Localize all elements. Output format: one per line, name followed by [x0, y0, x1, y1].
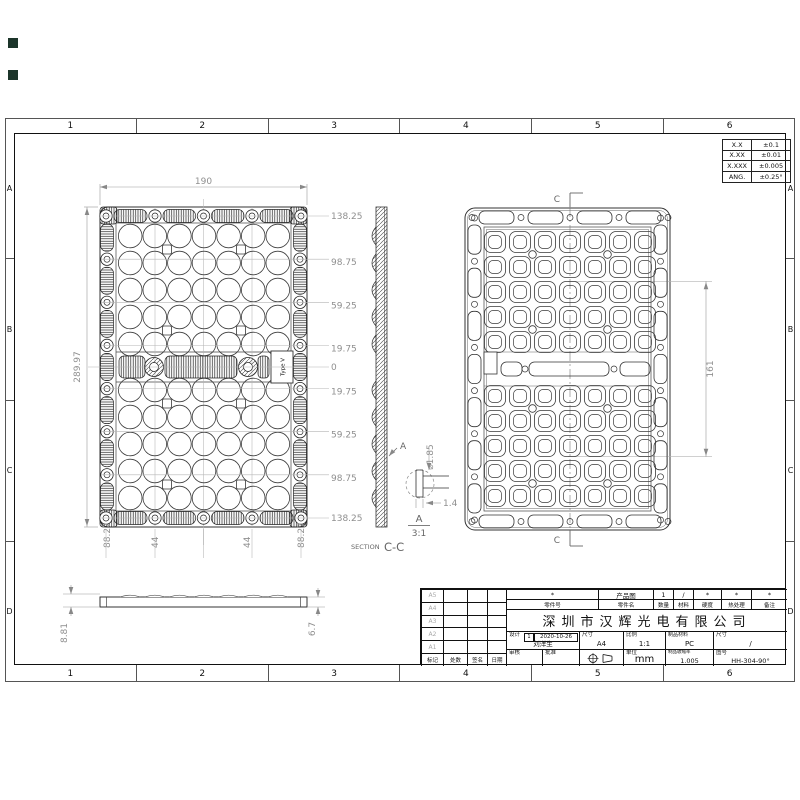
scale-cell: 比例 1:1	[623, 631, 665, 649]
revision-empty-cell	[467, 640, 487, 653]
revision-empty-cell	[467, 589, 487, 602]
shrinkage-cell: 制品收缩率 1.005	[665, 649, 713, 666]
revision-row-A4: A4	[421, 602, 443, 615]
tolerance-value: ±0.01	[752, 151, 790, 162]
revision-header: 日期	[487, 653, 506, 666]
revision-empty-cell	[487, 640, 506, 653]
scale-value: 1:1	[624, 640, 665, 648]
grid-col-6: 6	[664, 118, 795, 133]
grid-col-3: 3	[269, 665, 401, 682]
revision-empty-cell	[443, 589, 467, 602]
ruler-left: ABCD	[5, 118, 14, 682]
tolerance-value: ±0.1	[752, 140, 790, 151]
grid-row-D: D	[786, 542, 795, 682]
revision-row-A5: A5	[421, 589, 443, 602]
revision-empty-cell	[467, 615, 487, 628]
approve-label: 批准	[545, 651, 556, 657]
grid-col-1: 1	[5, 665, 137, 682]
revision-empty-cell	[443, 627, 467, 640]
size-label: 尺寸	[582, 633, 593, 639]
prod-material-value: PC	[666, 640, 713, 648]
tolerance-value: ±0.005	[752, 161, 790, 172]
grid-col-1: 1	[5, 118, 137, 133]
title-block: * 产品图 1 / * * * 零件号 零件名 数量 材料 硬度 热处理 备注 …	[420, 588, 786, 665]
hardness-label: 硬度	[693, 599, 721, 609]
hardness-value: *	[693, 589, 721, 599]
qty-value: 1	[653, 589, 673, 599]
drawing-no-cell: 图号 HH-304-90°	[713, 649, 787, 666]
grid-col-4: 4	[400, 118, 532, 133]
part-name-value: 产品图	[598, 589, 653, 599]
tolerance-table: X.X±0.1X.XX±0.01X.XXX±0.005ANG.±0.25°	[722, 139, 791, 183]
revision-empty-cell	[443, 640, 467, 653]
grid-col-2: 2	[137, 118, 269, 133]
scale-label: 比例	[626, 633, 637, 639]
revision-empty-cell	[443, 602, 467, 615]
check-cell: 审核	[506, 649, 542, 666]
dim-label: 尺寸	[716, 633, 727, 639]
revision-empty-cell	[443, 615, 467, 628]
size-value: A4	[580, 640, 623, 648]
grid-row-A: A	[5, 118, 14, 259]
revision-empty-cell	[467, 627, 487, 640]
part-name-label: 零件名	[598, 599, 653, 609]
drawing-no-label: 图号	[716, 651, 727, 657]
material-value: /	[673, 589, 693, 599]
tolerance-key: X.XX	[723, 151, 752, 162]
revision-row-A2: A2	[421, 627, 443, 640]
dim-cell: 尺寸 /	[713, 631, 787, 649]
frame-inner	[14, 133, 786, 665]
part-no-label: 零件号	[506, 599, 598, 609]
revision-header: 处数	[443, 653, 467, 666]
revision-empty-cell	[487, 615, 506, 628]
grid-col-6: 6	[664, 665, 795, 682]
treatment-value: *	[721, 589, 751, 599]
revision-row-A1: A1	[421, 640, 443, 653]
tolerance-value: ±0.25°	[752, 172, 790, 183]
grid-row-D: D	[5, 542, 14, 682]
tolerance-key: X.XXX	[723, 161, 752, 172]
material-label: 材料	[673, 599, 693, 609]
remark-value: *	[751, 589, 787, 599]
drawing-no-value: HH-304-90°	[714, 657, 787, 665]
designer-cell: 设计 1 2020-10-26 刘洋生	[506, 631, 579, 649]
unit-value: mm	[624, 654, 665, 665]
designer-name: 刘洋生	[507, 638, 579, 648]
prod-material-label: 制品材料	[668, 633, 688, 638]
dim-value: /	[714, 640, 787, 648]
grid-row-B: B	[786, 259, 795, 400]
company-name: 深圳市汉辉光电有限公司	[506, 609, 787, 631]
grid-col-5: 5	[532, 118, 664, 133]
grid-col-5: 5	[532, 665, 664, 682]
ruler-bottom: 123456	[5, 665, 795, 682]
unit-cell: 单位 mm	[623, 649, 665, 666]
size-cell: 尺寸 A4	[579, 631, 623, 649]
grid-col-4: 4	[400, 665, 532, 682]
approve-cell: 批准	[542, 649, 579, 666]
prod-material-cell: 制品材料 PC	[665, 631, 713, 649]
revision-empty-cell	[487, 627, 506, 640]
tolerance-key: X.X	[723, 140, 752, 151]
remark-label: 备注	[751, 599, 787, 609]
revision-header: 签名	[467, 653, 487, 666]
revision-row-A3: A3	[421, 615, 443, 628]
grid-row-B: B	[5, 259, 14, 400]
grid-row-C: C	[786, 401, 795, 542]
first-angle-projection-icon	[587, 652, 617, 665]
revision-empty-cell	[467, 602, 487, 615]
grid-row-C: C	[5, 401, 14, 542]
revision-header: 标记	[421, 653, 443, 666]
revision-empty-cell	[487, 602, 506, 615]
ruler-right: ABCD	[786, 118, 795, 682]
grid-col-2: 2	[137, 665, 269, 682]
shrinkage-value: 1.005	[666, 657, 713, 665]
part-no-value: *	[506, 589, 598, 599]
revision-empty-cell	[487, 589, 506, 602]
check-label: 审核	[509, 651, 520, 657]
treatment-label: 热处理	[721, 599, 751, 609]
drawing-sheet: Type V 190 289.97 138.25 98.75 59.25 19.…	[0, 0, 800, 800]
projection-cell	[579, 649, 623, 666]
ruler-top: 123456	[5, 118, 795, 133]
qty-label: 数量	[653, 599, 673, 609]
tolerance-key: ANG.	[723, 172, 752, 183]
shrinkage-label: 制品收缩率	[668, 651, 691, 656]
grid-col-3: 3	[269, 118, 401, 133]
